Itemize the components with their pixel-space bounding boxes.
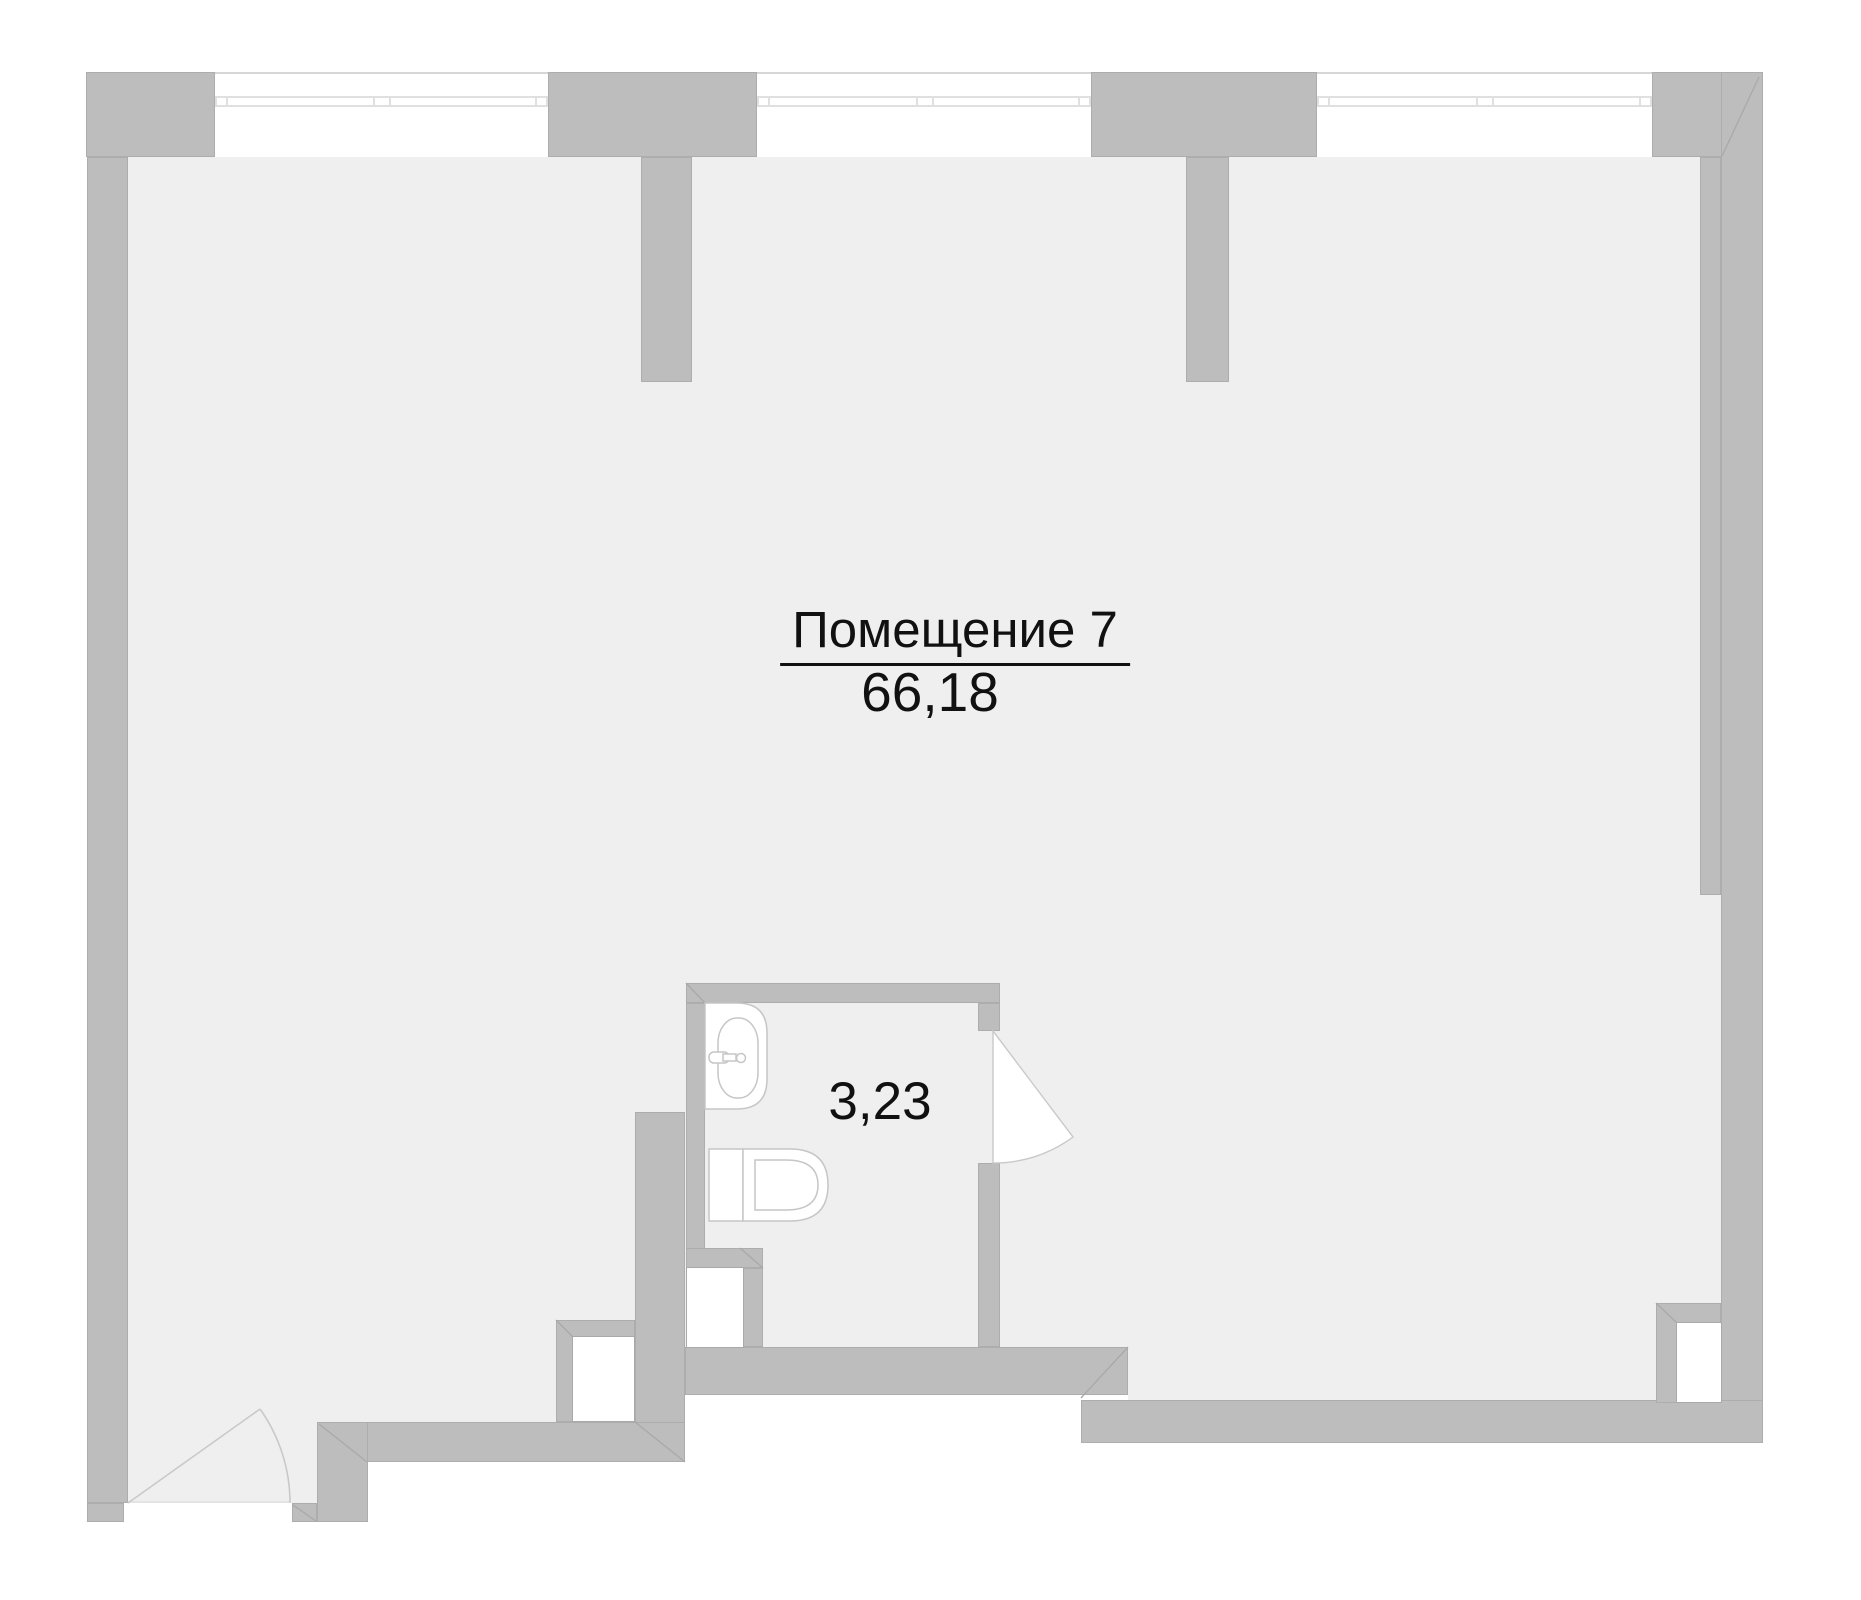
wall-left [87,157,128,1503]
shaft-opening-bathroom [687,1268,743,1347]
wall-pier-top-left [548,72,757,157]
window-left [215,96,548,107]
wall-bottom-right-band [1081,1400,1763,1443]
wall-bottom-mid-band [685,1347,1128,1395]
wall-pier-top-right [1091,72,1317,157]
wall-right-inner-layer [1700,157,1721,895]
window-middle [757,96,1091,107]
partition-wall-right [1186,157,1229,382]
bathroom-area: 3,23 [828,1074,931,1130]
wall-corner-top-left [86,72,215,157]
wall-bottom-left-band [317,1422,685,1462]
wall-right-outer [1721,72,1763,1443]
wall-left-foot [87,1503,124,1522]
exterior-wall-face-line [86,72,1763,74]
bathroom-wall-bottom-left [686,1248,763,1268]
bathroom-door-stub [978,1003,1000,1031]
wall-bottom-step-block [317,1422,368,1522]
entry-door-jamb [292,1503,317,1522]
main-room-floor [128,157,1700,1347]
main-room-floor [128,1347,317,1503]
bathroom-wall-top [686,983,1000,1003]
bathroom-wall-right [978,1163,1000,1347]
wall-west-of-bathroom [635,1112,685,1462]
main-room-floor [1128,1347,1656,1400]
shaft-opening-left [573,1337,634,1421]
shaft-opening-bottom-right [1677,1323,1721,1402]
bathroom-shaft-rim [743,1268,763,1347]
main-room-label: Помещение 7 [780,603,1130,666]
bathroom-wall-left [686,1003,705,1265]
floor-plan: Помещение 7 66,18 3,23 [0,0,1861,1600]
main-room-area: 66,18 [861,664,999,722]
window-right [1317,96,1652,107]
main-room-floor [1700,895,1721,1303]
partition-wall-left [641,157,692,382]
